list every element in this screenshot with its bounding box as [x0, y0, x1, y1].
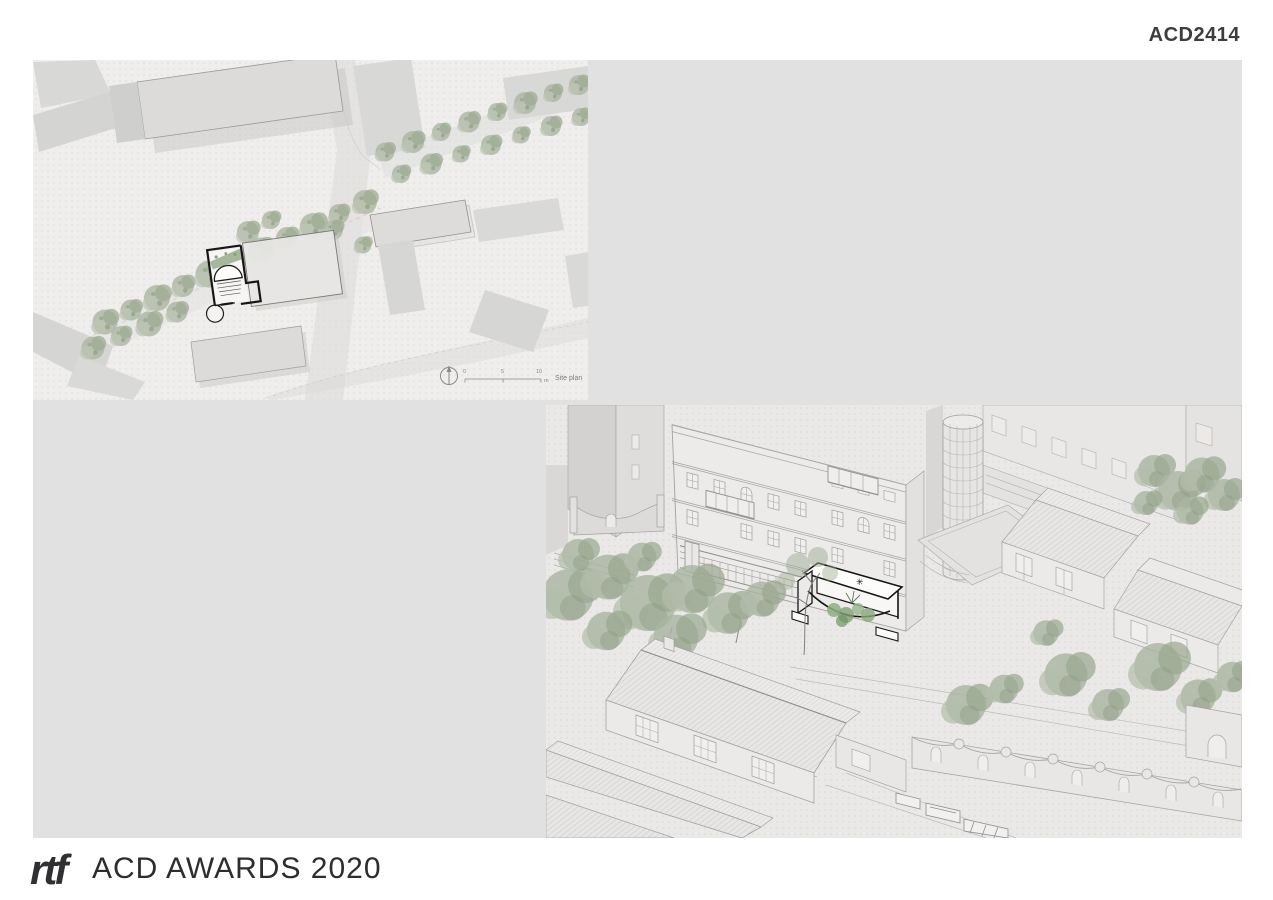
- canopy-mark: ✳: [856, 577, 864, 587]
- board-code: ACD2414: [1149, 24, 1240, 47]
- right-houses: [1002, 488, 1242, 673]
- presentation-board: ACD2414: [0, 0, 1273, 900]
- scale-tick-5: 5: [501, 369, 504, 375]
- scale-bar: 0 5 10 m: [463, 369, 549, 384]
- axon-svg: ✳: [546, 405, 1242, 838]
- scale-tick-10: 10: [536, 369, 542, 375]
- north-arrow-icon: [441, 366, 458, 385]
- site-plan-svg: 0 5 10 m Site plan: [33, 60, 588, 400]
- canvas-background: 0 5 10 m Site plan: [33, 60, 1242, 838]
- axonometric-drawing: ✳: [546, 405, 1242, 838]
- rtf-logo-icon: rtf: [30, 846, 82, 892]
- foreground-roofs: [546, 636, 906, 838]
- site-plan-label: Site plan: [555, 375, 582, 382]
- rtf-logo-text: rtf: [30, 846, 72, 892]
- awards-title: ACD AWARDS 2020: [92, 852, 382, 886]
- footer: rtf ACD AWARDS 2020: [30, 845, 382, 893]
- scale-unit: m: [544, 378, 549, 384]
- planter-boxes: [896, 793, 1008, 838]
- site-plan-drawing: 0 5 10 m Site plan: [33, 60, 588, 400]
- scale-tick-0: 0: [463, 369, 466, 375]
